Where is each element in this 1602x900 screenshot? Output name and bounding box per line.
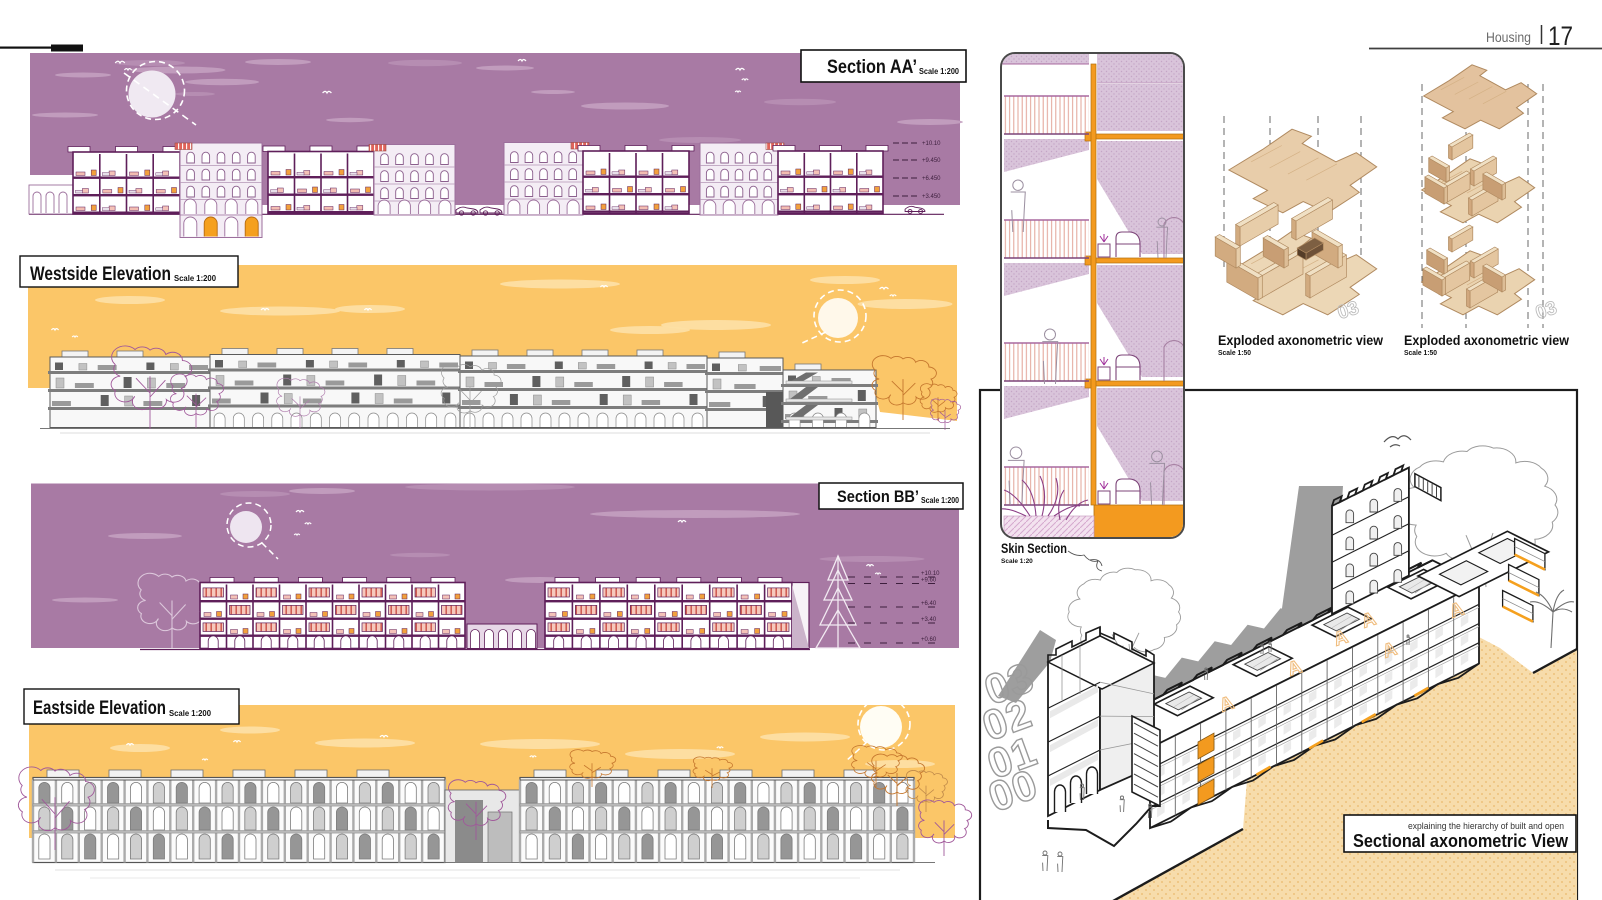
svg-text:Exploded axonometric view: Exploded axonometric view [1404,332,1569,348]
svg-text:+3.40: +3.40 [921,617,937,623]
svg-text:+9.60: +9.60 [921,578,937,584]
svg-text:Scale 1:200: Scale 1:200 [174,273,216,283]
svg-text:+9.450: +9.450 [922,158,941,164]
svg-text:Scale 1:200: Scale 1:200 [921,496,959,505]
svg-text:Housing: Housing [1486,29,1531,45]
svg-text:Scale 1:50: Scale 1:50 [1404,350,1437,357]
svg-text:+3.450: +3.450 [922,194,941,200]
svg-text:+0.60: +0.60 [921,637,937,643]
svg-text:+10.10: +10.10 [921,571,940,577]
svg-text:Scale 1:200: Scale 1:200 [919,66,959,76]
svg-text:+10.10: +10.10 [922,141,941,147]
svg-text:Exploded axonometric view: Exploded axonometric view [1218,332,1383,348]
svg-text:+6.40: +6.40 [921,601,937,607]
svg-text:Section AA’: Section AA’ [827,57,917,78]
svg-text:Section BB’: Section BB’ [837,487,919,506]
svg-text:Scale 1:20: Scale 1:20 [1001,558,1033,565]
svg-text:+6.450: +6.450 [922,176,941,182]
svg-text:Scale 1:50: Scale 1:50 [1218,350,1251,357]
svg-text:Skin Section: Skin Section [1001,540,1067,556]
svg-text:Scale 1:200: Scale 1:200 [169,708,211,718]
svg-text:Sectional axonometric View: Sectional axonometric View [1353,830,1569,851]
svg-text:Westside Elevation: Westside Elevation [30,264,171,285]
svg-text:Eastside Elevation: Eastside Elevation [33,698,166,719]
svg-text:17: 17 [1548,21,1573,51]
